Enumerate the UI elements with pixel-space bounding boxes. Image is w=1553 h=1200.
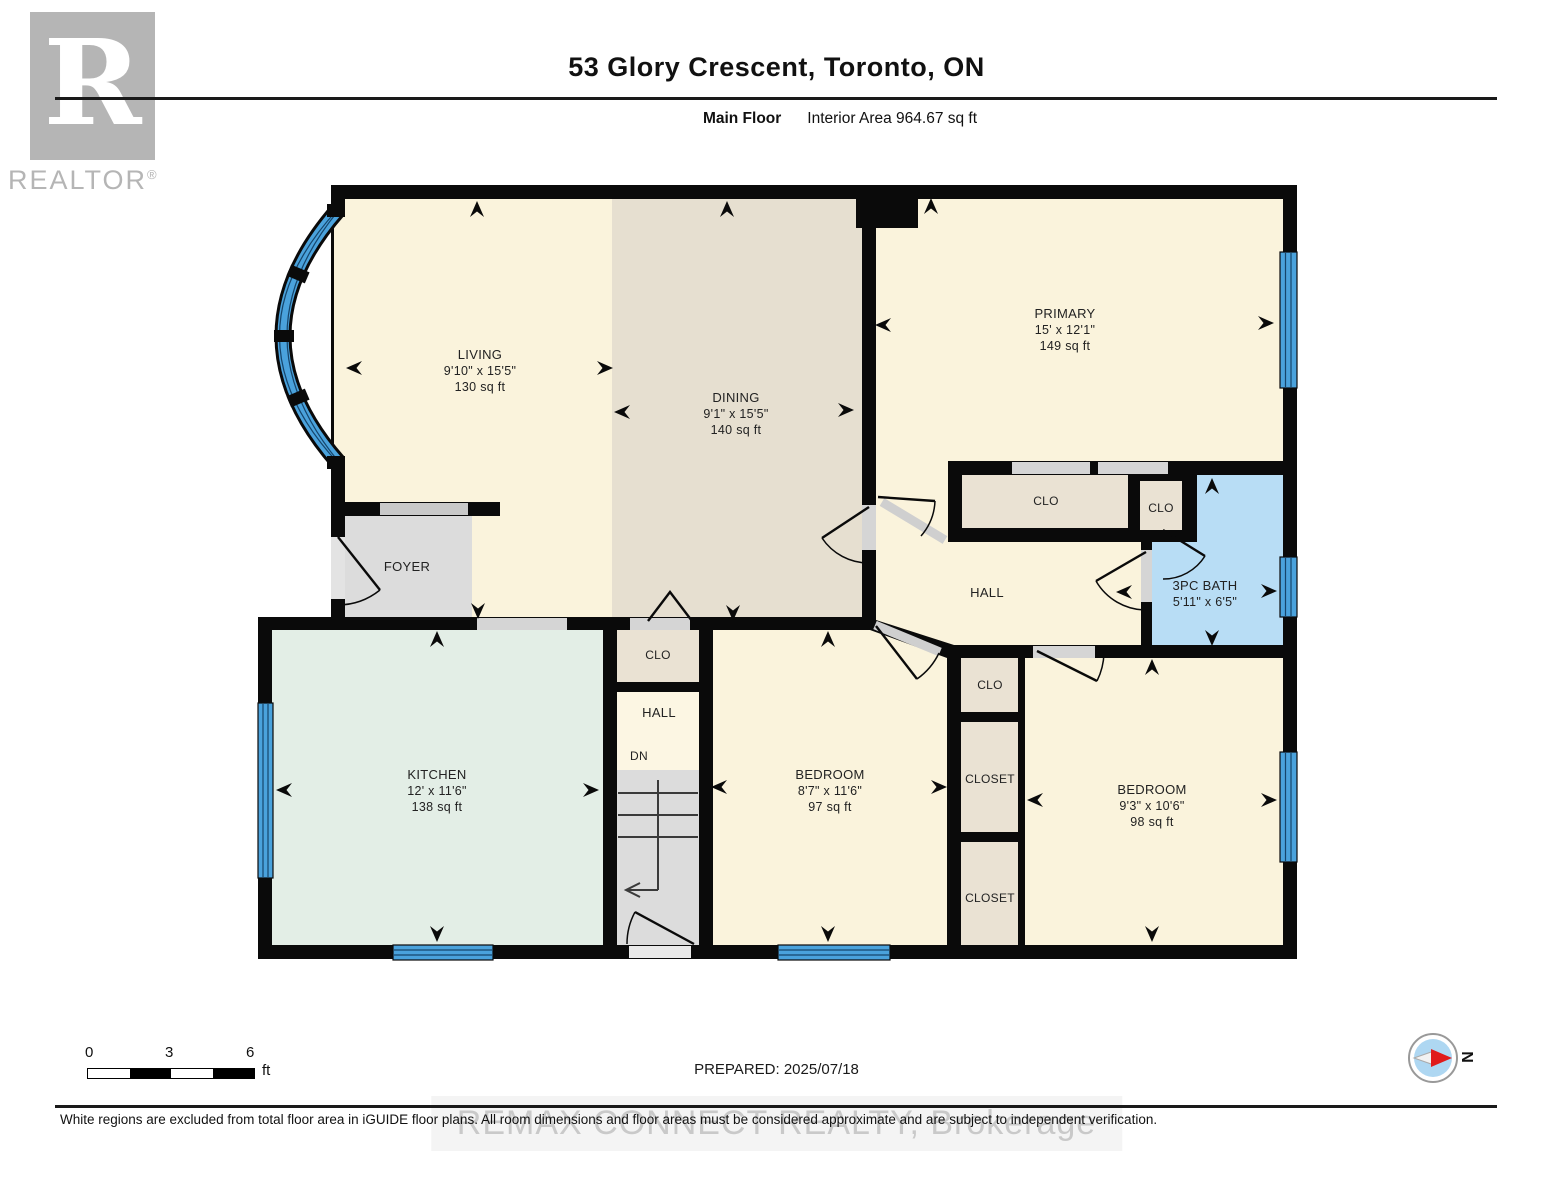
window-kitchen-bottom	[393, 945, 493, 960]
label-bath: 3PC BATH	[1172, 578, 1237, 593]
floor-plan: LIVING 9'10" x 15'5" 130 sq ft DINING 9'…	[0, 0, 1553, 1010]
svg-text:149 sq ft: 149 sq ft	[1040, 339, 1091, 353]
label-dn: DN	[630, 749, 648, 763]
window-bedroom-right	[1280, 752, 1297, 862]
label-hall-upper: HALL	[970, 585, 1004, 600]
footer-divider	[55, 1105, 1497, 1108]
svg-text:9'1" x 15'5": 9'1" x 15'5"	[703, 407, 768, 421]
svg-text:9'3" x 10'6": 9'3" x 10'6"	[1119, 799, 1184, 813]
svg-text:130 sq ft: 130 sq ft	[455, 380, 506, 394]
svg-text:138 sq ft: 138 sq ft	[412, 800, 463, 814]
label-closet-upper: CLOSET	[965, 772, 1015, 786]
svg-text:8'7" x 11'6": 8'7" x 11'6"	[798, 784, 862, 798]
svg-text:5'11" x 6'5": 5'11" x 6'5"	[1173, 595, 1237, 609]
label-clo-primary-small: CLO	[1148, 501, 1174, 515]
label-closet-lower: CLOSET	[965, 891, 1015, 905]
label-kitchen: KITCHEN	[407, 767, 466, 782]
room-hall-upper	[876, 542, 1141, 645]
header-divider	[55, 97, 1497, 100]
label-foyer: FOYER	[384, 559, 430, 574]
label-living: LIVING	[458, 347, 502, 362]
prepared-date: PREPARED: 2025/07/18	[0, 1061, 1553, 1078]
label-bedroom-right: BEDROOM	[1117, 782, 1186, 797]
label-bedroom-middle: BEDROOM	[795, 767, 864, 782]
label-dining: DINING	[712, 390, 759, 405]
svg-text:98 sq ft: 98 sq ft	[1130, 815, 1174, 829]
svg-text:15' x 12'1": 15' x 12'1"	[1035, 323, 1095, 337]
compass-north-label: N	[1457, 1051, 1475, 1063]
label-primary: PRIMARY	[1034, 306, 1095, 321]
wall-stub	[948, 461, 962, 542]
label-clo-mid: CLO	[645, 648, 671, 662]
svg-text:9'10" x 15'5": 9'10" x 15'5"	[444, 364, 516, 378]
window-bath-right	[1280, 557, 1297, 617]
page: R REALTOR® 53 Glory Crescent, Toronto, O…	[0, 0, 1553, 1200]
svg-text:12' x 11'6": 12' x 11'6"	[407, 784, 467, 798]
svg-text:97 sq ft: 97 sq ft	[808, 800, 852, 814]
window-primary-right	[1280, 252, 1297, 388]
label-clo-col: CLO	[977, 678, 1003, 692]
disclaimer-text: White regions are excluded from total fl…	[60, 1112, 1157, 1127]
compass-icon	[1406, 1031, 1460, 1085]
label-clo-primary-large: CLO	[1033, 494, 1059, 508]
label-hall-lower: HALL	[642, 705, 676, 720]
wall-notch	[856, 185, 918, 228]
svg-text:140 sq ft: 140 sq ft	[711, 423, 762, 437]
window-bedroom-middle-bottom	[778, 945, 890, 960]
window-kitchen-left	[258, 703, 273, 878]
